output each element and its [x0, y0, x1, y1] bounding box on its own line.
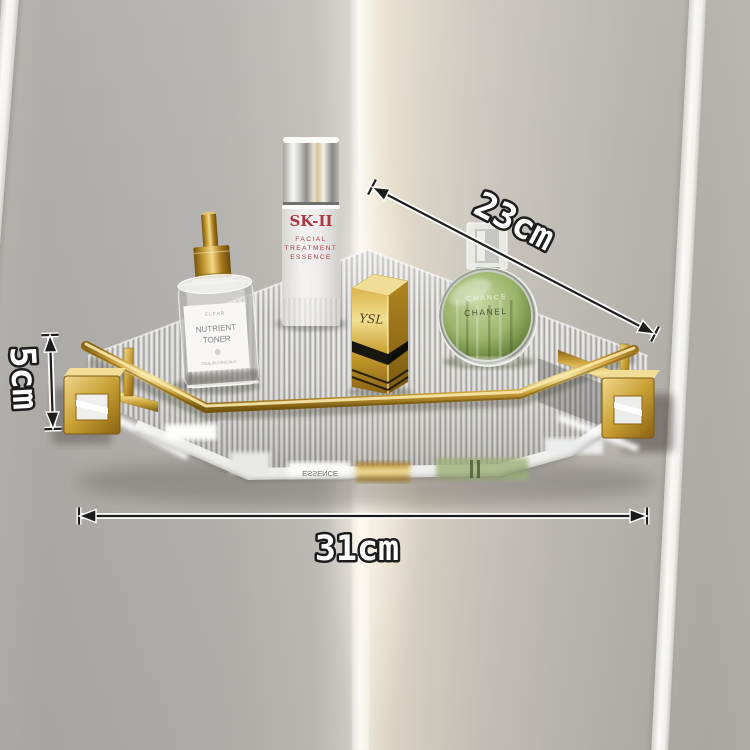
corner-shelf-product-photo: CLEAR NUTRIENT TONER TRUE BOTANICALS SK-…: [0, 0, 750, 750]
dropper-stem: [201, 214, 218, 251]
skii-line2: TREATMENT: [285, 245, 338, 252]
dimension-width-31cm: 31cm: [79, 516, 647, 569]
skii-brand: SK-II: [289, 212, 332, 230]
skii-cap: [283, 137, 339, 205]
dimension-label-5cm: 5cm: [1, 345, 44, 410]
dimension-label-31cm: 31cm: [315, 529, 399, 569]
ysl-lipstick: YSL: [352, 274, 408, 394]
reflection-essence: ESSENCE: [302, 469, 338, 478]
ysl-logo: YSL: [359, 311, 384, 327]
toner-bottle: CLEAR NUTRIENT TONER TRUE BOTANICALS: [173, 209, 259, 388]
skii-line3: ESSENCE: [290, 254, 332, 261]
skii-bottle: SK-II FACIAL TREATMENT ESSENCE: [282, 137, 340, 326]
shelf-scene: CLEAR NUTRIENT TONER TRUE BOTANICALS SK-…: [0, 0, 750, 750]
dimension-height-5cm: 5cm: [1, 335, 53, 429]
skii-line1: FACIAL: [295, 236, 326, 243]
